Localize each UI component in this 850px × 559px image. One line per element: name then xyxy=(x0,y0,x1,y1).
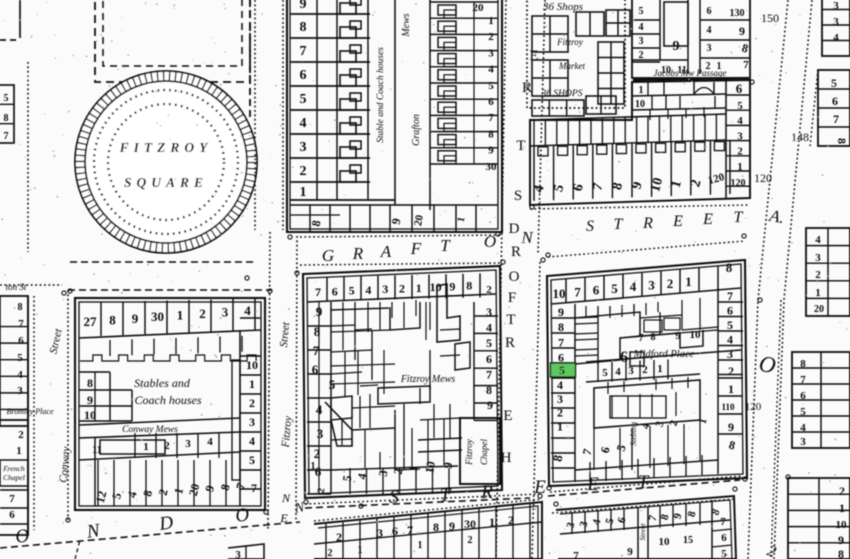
svg-text:Stable and Coach houses: Stable and Coach houses xyxy=(376,47,386,143)
svg-text:9: 9 xyxy=(838,533,844,547)
svg-text:7: 7 xyxy=(313,343,320,358)
svg-text:7: 7 xyxy=(407,523,413,537)
svg-text:6: 6 xyxy=(488,96,494,108)
svg-text:Grafton: Grafton xyxy=(411,114,422,146)
svg-text:6: 6 xyxy=(312,362,319,377)
svg-text:9: 9 xyxy=(488,145,494,157)
svg-text:3: 3 xyxy=(727,347,733,361)
svg-text:4: 4 xyxy=(244,303,251,318)
svg-text:5: 5 xyxy=(611,281,618,296)
svg-text:8: 8 xyxy=(109,312,116,327)
svg-text:3: 3 xyxy=(185,438,191,450)
svg-text:5: 5 xyxy=(17,352,23,364)
svg-text:7: 7 xyxy=(315,285,321,299)
svg-text:3: 3 xyxy=(648,278,655,293)
svg-text:T: T xyxy=(638,472,650,493)
svg-text:9: 9 xyxy=(627,546,633,558)
svg-text:3: 3 xyxy=(377,526,383,540)
svg-text:1: 1 xyxy=(488,15,494,27)
svg-text:T: T xyxy=(440,236,451,255)
svg-text:1: 1 xyxy=(839,501,845,515)
svg-text:9: 9 xyxy=(449,279,455,293)
svg-text:Chapel: Chapel xyxy=(479,439,489,465)
svg-text:120: 120 xyxy=(745,401,762,413)
svg-text:7: 7 xyxy=(800,374,806,386)
svg-text:120: 120 xyxy=(754,171,772,185)
svg-text:ton St: ton St xyxy=(6,282,27,292)
svg-text:6: 6 xyxy=(486,352,492,366)
svg-text:6: 6 xyxy=(392,524,398,538)
svg-text:3: 3 xyxy=(488,47,494,59)
svg-text:4: 4 xyxy=(630,279,637,294)
svg-text:10: 10 xyxy=(422,460,438,474)
svg-text:T: T xyxy=(516,138,525,154)
svg-text:8: 8 xyxy=(558,320,564,334)
svg-text:8: 8 xyxy=(433,520,439,534)
svg-text:4: 4 xyxy=(727,333,733,347)
svg-text:3: 3 xyxy=(222,304,229,319)
svg-text:8: 8 xyxy=(4,113,9,124)
svg-text:7: 7 xyxy=(574,284,581,299)
svg-text:9: 9 xyxy=(739,24,745,38)
svg-text:1: 1 xyxy=(685,274,692,289)
svg-text:1: 1 xyxy=(639,85,644,96)
svg-text:1: 1 xyxy=(416,281,422,295)
svg-text:Stables and: Stables and xyxy=(134,376,191,390)
svg-text:2: 2 xyxy=(508,513,514,527)
svg-text:6: 6 xyxy=(727,304,733,318)
svg-text:4: 4 xyxy=(800,422,806,434)
svg-text:4: 4 xyxy=(557,378,563,392)
svg-text:A: A xyxy=(380,242,392,261)
svg-text:4: 4 xyxy=(833,32,839,44)
svg-text:9: 9 xyxy=(449,519,455,533)
svg-text:10: 10 xyxy=(84,408,96,422)
svg-text:2: 2 xyxy=(488,31,494,43)
svg-text:36 SHOPS: 36 SHOPS xyxy=(541,89,583,99)
svg-text:7: 7 xyxy=(573,550,579,559)
svg-text:5: 5 xyxy=(800,406,806,418)
svg-text:3: 3 xyxy=(557,392,563,406)
svg-text:30: 30 xyxy=(151,309,164,324)
svg-text:5: 5 xyxy=(300,92,307,107)
svg-text:1: 1 xyxy=(728,382,734,396)
svg-text:4: 4 xyxy=(316,402,323,417)
svg-text:10: 10 xyxy=(659,536,671,548)
svg-text:2: 2 xyxy=(300,164,307,179)
svg-text:11: 11 xyxy=(92,445,101,456)
svg-text:130: 130 xyxy=(730,8,745,19)
svg-text:S: S xyxy=(389,487,399,508)
svg-text:2: 2 xyxy=(737,146,743,158)
svg-text:7: 7 xyxy=(558,335,564,349)
svg-text:2: 2 xyxy=(728,364,734,378)
svg-text:2: 2 xyxy=(164,440,170,452)
svg-text:1: 1 xyxy=(16,445,22,457)
svg-text:4: 4 xyxy=(17,369,23,381)
svg-text:6: 6 xyxy=(832,94,838,108)
svg-text:2: 2 xyxy=(249,396,255,410)
svg-text:5: 5 xyxy=(249,453,255,467)
svg-text:8: 8 xyxy=(726,260,733,275)
svg-text:E: E xyxy=(503,408,512,424)
svg-text:2: 2 xyxy=(486,284,492,296)
svg-text:R: R xyxy=(511,244,521,260)
svg-text:2: 2 xyxy=(667,276,674,291)
svg-text:Market: Market xyxy=(558,61,585,71)
svg-text:R: R xyxy=(642,215,653,232)
svg-text:2: 2 xyxy=(199,306,206,321)
svg-text:3: 3 xyxy=(800,436,806,448)
svg-text:D: D xyxy=(509,221,520,237)
svg-text:6: 6 xyxy=(800,390,806,402)
svg-text:10: 10 xyxy=(635,99,645,110)
svg-text:10: 10 xyxy=(690,329,702,341)
svg-text:3: 3 xyxy=(737,130,743,142)
svg-text:6: 6 xyxy=(593,283,600,298)
svg-text:Fitzroy: Fitzroy xyxy=(464,439,474,466)
svg-text:N: N xyxy=(520,228,534,247)
svg-text:6: 6 xyxy=(18,335,24,347)
svg-text:9: 9 xyxy=(673,39,680,54)
svg-text:E: E xyxy=(702,211,713,228)
svg-text:Mews: Mews xyxy=(401,13,412,37)
svg-text:30: 30 xyxy=(464,517,476,531)
svg-text:10: 10 xyxy=(246,358,258,372)
svg-text:1: 1 xyxy=(557,419,563,433)
svg-text:1: 1 xyxy=(489,515,495,529)
svg-text:Stebing: Stebing xyxy=(629,422,638,446)
svg-text:F: F xyxy=(410,239,422,258)
svg-text:E: E xyxy=(672,213,683,230)
svg-text:5: 5 xyxy=(4,93,9,104)
svg-text:2: 2 xyxy=(468,535,473,546)
svg-text:5: 5 xyxy=(602,367,608,379)
svg-text:3: 3 xyxy=(833,16,839,28)
svg-text:7: 7 xyxy=(18,318,24,330)
svg-text:10: 10 xyxy=(553,286,566,301)
svg-text:4: 4 xyxy=(737,115,743,127)
svg-text:9: 9 xyxy=(728,420,734,434)
svg-text:2: 2 xyxy=(399,282,405,296)
svg-text:3: 3 xyxy=(317,426,324,441)
svg-text:1: 1 xyxy=(300,185,307,200)
svg-text:7: 7 xyxy=(488,112,494,124)
svg-text:5: 5 xyxy=(737,100,743,112)
svg-text:4: 4 xyxy=(815,234,821,246)
svg-text:3: 3 xyxy=(235,549,241,559)
svg-text:110: 110 xyxy=(721,402,735,412)
svg-text:9: 9 xyxy=(87,393,93,407)
svg-text:150: 150 xyxy=(761,11,779,25)
svg-text:1: 1 xyxy=(657,363,663,375)
svg-text:N: N xyxy=(281,491,291,505)
svg-text:7: 7 xyxy=(486,367,492,381)
svg-text:9: 9 xyxy=(132,311,139,326)
svg-text:SQUARE: SQUARE xyxy=(124,175,208,190)
svg-text:5: 5 xyxy=(488,80,494,92)
svg-text:Street: Street xyxy=(278,321,292,348)
svg-text:4: 4 xyxy=(300,116,307,131)
svg-text:15: 15 xyxy=(683,535,693,546)
svg-text:E: E xyxy=(529,48,538,64)
svg-text:1: 1 xyxy=(249,377,255,391)
svg-text:30: 30 xyxy=(486,161,498,173)
svg-text:2: 2 xyxy=(815,269,821,281)
svg-text:O: O xyxy=(509,269,520,285)
svg-text:4: 4 xyxy=(488,64,494,76)
svg-text:1: 1 xyxy=(815,287,821,299)
svg-text:2: 2 xyxy=(557,406,563,420)
svg-text:6: 6 xyxy=(332,284,338,298)
svg-text:10: 10 xyxy=(430,280,442,294)
svg-text:1: 1 xyxy=(737,161,743,173)
svg-text:G: G xyxy=(322,246,334,265)
svg-text:5: 5 xyxy=(639,6,644,17)
svg-text:8: 8 xyxy=(18,302,23,313)
svg-text:2: 2 xyxy=(336,530,342,544)
svg-text:27: 27 xyxy=(84,314,98,329)
svg-text:8: 8 xyxy=(466,279,472,293)
svg-text:R: R xyxy=(505,335,515,351)
svg-text:T: T xyxy=(614,216,624,233)
svg-text:4: 4 xyxy=(365,283,371,297)
svg-text:8: 8 xyxy=(488,128,494,140)
svg-text:3: 3 xyxy=(249,415,255,429)
svg-text:2: 2 xyxy=(18,429,24,441)
svg-text:9: 9 xyxy=(487,398,493,412)
svg-text:5: 5 xyxy=(559,363,565,377)
svg-text:9: 9 xyxy=(316,304,323,319)
svg-text:Midford Place: Midford Place xyxy=(633,349,695,360)
svg-text:2: 2 xyxy=(839,484,845,498)
svg-text:F: F xyxy=(508,290,516,306)
svg-text:3: 3 xyxy=(382,282,388,296)
svg-text:7: 7 xyxy=(720,516,726,528)
svg-text:8: 8 xyxy=(838,547,844,559)
svg-text:2: 2 xyxy=(639,50,644,61)
svg-text:148: 148 xyxy=(791,130,809,144)
svg-text:Coach houses: Coach houses xyxy=(135,393,202,407)
svg-text:9: 9 xyxy=(675,330,681,342)
svg-text:7: 7 xyxy=(4,131,9,142)
svg-text:Bromley Place: Bromley Place xyxy=(6,407,53,416)
svg-text:8: 8 xyxy=(300,20,307,35)
svg-text:8: 8 xyxy=(87,376,93,390)
svg-text:4: 4 xyxy=(249,434,255,448)
svg-text:3: 3 xyxy=(707,43,712,54)
svg-text:9: 9 xyxy=(300,0,307,12)
svg-text:Conway Mews: Conway Mews xyxy=(122,425,178,435)
svg-text:9: 9 xyxy=(558,305,564,319)
svg-text:3: 3 xyxy=(639,36,644,47)
svg-text:7: 7 xyxy=(251,481,257,495)
svg-text:7: 7 xyxy=(300,44,307,59)
svg-text:Jacobs Mw Passage: Jacobs Mw Passage xyxy=(654,68,727,78)
svg-text:6: 6 xyxy=(620,349,628,366)
svg-text:T: T xyxy=(506,312,515,328)
svg-text:8: 8 xyxy=(651,332,656,343)
svg-text:6: 6 xyxy=(707,6,712,17)
svg-text:R: R xyxy=(352,244,364,263)
svg-text:8: 8 xyxy=(835,138,849,144)
svg-text:6: 6 xyxy=(300,68,307,83)
svg-text:2: 2 xyxy=(314,446,321,461)
svg-text:1: 1 xyxy=(143,441,149,453)
svg-text:7: 7 xyxy=(833,112,839,126)
svg-text:Chapel: Chapel xyxy=(3,473,25,482)
svg-text:Street: Street xyxy=(638,522,647,540)
svg-text:A.: A. xyxy=(767,206,786,227)
svg-text:4: 4 xyxy=(486,321,492,335)
svg-text:4: 4 xyxy=(639,22,644,33)
svg-text:7: 7 xyxy=(9,493,15,505)
svg-text:4: 4 xyxy=(615,366,621,378)
svg-text:7: 7 xyxy=(727,289,733,303)
svg-text:8: 8 xyxy=(800,358,806,370)
svg-text:7: 7 xyxy=(639,333,644,344)
svg-text:5: 5 xyxy=(727,318,733,332)
svg-text:4: 4 xyxy=(707,25,712,36)
svg-text:3: 3 xyxy=(833,0,839,12)
svg-text:1: 1 xyxy=(418,540,423,551)
svg-text:5: 5 xyxy=(486,336,492,350)
svg-text:T: T xyxy=(734,209,744,226)
svg-text:S: S xyxy=(514,188,522,204)
svg-text:3: 3 xyxy=(300,140,307,155)
svg-text:French: French xyxy=(2,464,25,473)
svg-text:1: 1 xyxy=(177,308,184,323)
svg-text:3: 3 xyxy=(628,365,634,377)
svg-text:7: 7 xyxy=(743,59,749,71)
svg-text:36 Shops: 36 Shops xyxy=(542,1,583,13)
svg-text:120: 120 xyxy=(731,178,746,189)
svg-text:5: 5 xyxy=(831,76,837,90)
svg-text:3: 3 xyxy=(486,305,492,319)
svg-text:20: 20 xyxy=(814,304,824,315)
svg-text:T: T xyxy=(440,485,452,506)
svg-text:2: 2 xyxy=(328,548,333,559)
svg-text:6: 6 xyxy=(9,509,15,521)
svg-text:10: 10 xyxy=(836,519,848,531)
svg-text:2: 2 xyxy=(642,364,648,376)
svg-text:3: 3 xyxy=(815,252,821,264)
svg-text:5: 5 xyxy=(721,548,727,559)
svg-text:Fitzroy Mews: Fitzroy Mews xyxy=(400,374,455,385)
svg-text:5: 5 xyxy=(349,284,355,298)
svg-text:4: 4 xyxy=(207,436,213,448)
svg-text:S: S xyxy=(586,218,594,235)
svg-text:6: 6 xyxy=(736,81,743,96)
svg-text:1: 1 xyxy=(358,545,363,556)
svg-text:3: 3 xyxy=(17,385,23,397)
svg-text:FITZROY: FITZROY xyxy=(119,140,213,155)
svg-text:6: 6 xyxy=(315,464,322,479)
svg-text:8: 8 xyxy=(314,324,321,339)
svg-text:6: 6 xyxy=(721,532,727,544)
svg-text:8: 8 xyxy=(486,383,492,397)
